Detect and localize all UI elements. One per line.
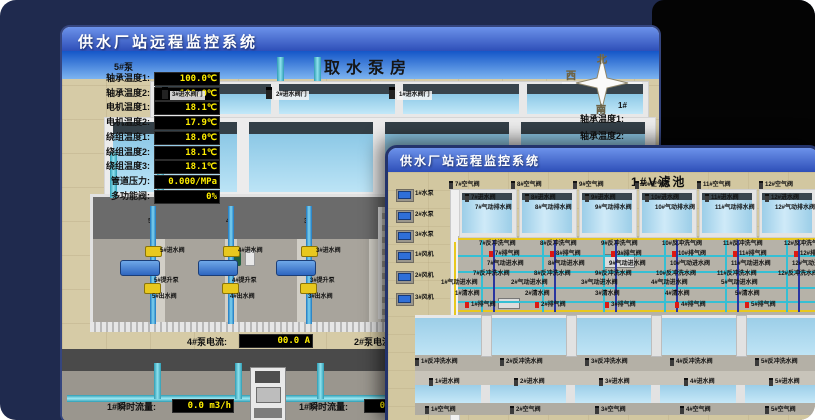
- valve-label: 1#反冲洗水阀: [421, 359, 458, 366]
- valve-icon[interactable]: [511, 181, 515, 189]
- valve-label: 4#反冲洗水阀: [676, 359, 713, 366]
- valve-label: 7#排气阀: [495, 251, 520, 258]
- valve-icon[interactable]: [697, 181, 701, 189]
- pump-house-titlebar[interactable]: 供水厂站远程监控系统: [62, 27, 659, 51]
- valve-label: 5#气动进水阀: [721, 280, 758, 287]
- walkway-pipe: [458, 310, 815, 312]
- valve-label: 10#气动进水阀: [670, 261, 710, 268]
- tank-divider: [481, 315, 492, 357]
- gate-valve-label: 3#进水阀门: [170, 91, 205, 100]
- tank-divider: [651, 385, 660, 403]
- valve-label: 2#空气阀: [516, 407, 541, 414]
- valve-icon[interactable]: [429, 378, 433, 386]
- valve-label: 2#清水阀: [525, 291, 550, 298]
- walkway-pipe: [458, 287, 815, 289]
- valve-label: 9#气动进水阀: [609, 261, 646, 268]
- device-label: 2#水泵: [415, 212, 434, 219]
- pump-panel-label: 电机温度2:: [62, 116, 150, 129]
- compass-north: 北: [597, 53, 607, 66]
- valve-label: 7#空气阀: [455, 182, 480, 189]
- valve-label: 7#反冲洗水阀: [473, 271, 510, 278]
- valve-label: 10#排气阀: [678, 251, 706, 258]
- alarm-marker-icon: [611, 251, 615, 257]
- pump-panel-value: 18.0℃: [154, 131, 220, 145]
- valve-label: 11#排气阀: [739, 251, 767, 258]
- device-label: 1#水泵: [415, 191, 434, 198]
- flow-meter-icon[interactable]: [250, 367, 286, 420]
- valve-label: 4#空气阀: [686, 407, 711, 414]
- tank-divider: [566, 385, 575, 403]
- scene-title-pump-house: 取水泵房: [324, 54, 412, 78]
- alarm-marker-icon: [550, 251, 554, 257]
- valve-icon[interactable]: [635, 181, 639, 189]
- valve-label: 10#进水阀: [651, 195, 679, 202]
- gate-valve-label: 2#进水阀门: [274, 91, 309, 100]
- flow1-value: 0.0 m3/h: [172, 399, 234, 413]
- valve-label: 8#进水阀: [531, 195, 556, 202]
- valve-icon[interactable]: [500, 358, 504, 366]
- pump-panel-value: 0%: [154, 190, 220, 204]
- compass-west: 西: [566, 70, 576, 82]
- valve-icon[interactable]: [525, 194, 529, 202]
- valve-label: 7#反冲洗气阀: [479, 241, 516, 248]
- valve-icon[interactable]: [765, 406, 769, 414]
- valve-label: 12#反冲洗气阀: [784, 241, 815, 248]
- valve-label: 11#进水阀: [711, 195, 739, 202]
- pump-panel-value: 0.000/MPa: [154, 175, 220, 189]
- valve-label: 1#空气阀: [431, 407, 456, 414]
- tank-divider: [651, 315, 662, 357]
- tank-divider: [736, 315, 747, 357]
- pump-panel-label: 管道压力:: [62, 175, 150, 188]
- valve-label: 9#反冲洗水阀: [595, 271, 632, 278]
- pump-panel-value: 18.1℃: [154, 101, 220, 115]
- valve-label: 4#清水阀: [665, 291, 690, 298]
- valve-icon[interactable]: [514, 378, 518, 386]
- alarm-marker-icon: [675, 302, 679, 308]
- gate-valve-icon[interactable]: [389, 87, 395, 99]
- valve-icon[interactable]: [645, 194, 649, 202]
- valve-label: 5#反冲洗水阀: [761, 359, 798, 366]
- pipe: [314, 57, 321, 83]
- valve-label: 7#气动进水阀: [487, 261, 524, 268]
- alarm-marker-icon: [672, 251, 676, 257]
- compass-icon: 北 西 南: [554, 51, 650, 115]
- right-panel-label: 轴承温度2:: [580, 129, 658, 142]
- valve-label: 8#反冲洗水阀: [534, 271, 571, 278]
- pump4-current-label: 4#泵电流:: [187, 335, 227, 348]
- valve-label: 8#排气阀: [556, 251, 581, 258]
- valve-label: 8#反冲洗气阀: [540, 241, 577, 248]
- gate-valve-icon[interactable]: [162, 87, 168, 99]
- valve-label: 2#气动进水阀: [511, 280, 548, 287]
- alarm-marker-icon: [794, 251, 798, 257]
- valve-label: 5#清水阀: [735, 291, 760, 298]
- pipe-riser: [154, 363, 161, 399]
- pump-body-icon[interactable]: [120, 260, 160, 276]
- valve-label: 5#出水阀: [152, 294, 177, 301]
- valve-label: 10#反冲洗气阀: [662, 241, 702, 248]
- device-label: 2#风机: [415, 273, 434, 280]
- pipe-riser: [235, 363, 242, 399]
- valve-label: 2#反冲洗水阀: [506, 359, 543, 366]
- valve-label: 1#清水阀: [455, 291, 480, 298]
- valve-label: 5#空气阀: [771, 407, 796, 414]
- filter-pool-scene: 1#V滤池 1#水泵2#水泵3#水泵1#风机2#风机3#风机7#空气阀8#空气阀…: [388, 172, 815, 420]
- valve-icon[interactable]: [465, 194, 469, 202]
- valve-icon[interactable]: [769, 378, 773, 386]
- pump-panel-value: 18.1℃: [154, 146, 220, 160]
- valve-icon[interactable]: [755, 358, 759, 366]
- gate-valve-icon[interactable]: [266, 87, 272, 99]
- valve-label: 11#气动排水阀: [715, 205, 755, 212]
- pump-label: 3#提升泵: [310, 278, 335, 285]
- pump-icon[interactable]: [398, 232, 411, 240]
- valve-icon[interactable]: [415, 358, 419, 366]
- pump-icon[interactable]: [398, 212, 411, 220]
- valve-label: 11#空气阀: [703, 182, 731, 189]
- pump-panel-label: 绕组温度1:: [62, 131, 150, 144]
- valve-label: 12#进水阀: [771, 195, 799, 202]
- valve-label: 5#进水阀: [160, 248, 185, 255]
- pipe-riser: [317, 363, 324, 399]
- flow1-label: 1#瞬时流量:: [107, 400, 156, 413]
- pump-label: 5#提升泵: [154, 278, 179, 285]
- valve-label: 7#进水阀: [471, 195, 496, 202]
- alarm-marker-icon: [745, 302, 749, 308]
- valve-label: 11#反冲洗气阀: [723, 241, 763, 248]
- tank-divider: [566, 315, 577, 357]
- valve-label: 8#气动排水阀: [535, 205, 572, 212]
- valve-label: 1#排气阀: [471, 302, 496, 309]
- valve-icon[interactable]: [670, 358, 674, 366]
- valve-icon[interactable]: [425, 406, 429, 414]
- pump-panel-value: 100.0℃: [154, 72, 220, 86]
- pump-house-title: 供水厂站远程监控系统: [62, 27, 258, 52]
- pump-panel-label: 绕组温度3:: [62, 160, 150, 173]
- valve-icon[interactable]: [705, 194, 709, 202]
- valve-label: 3#排气阀: [611, 302, 636, 309]
- valve-label: 12#气动排水阀: [775, 205, 815, 212]
- valve-icon[interactable]: [573, 181, 577, 189]
- tank-divider: [736, 385, 745, 403]
- walkway-pipe: [458, 238, 815, 240]
- valve-icon[interactable]: [759, 181, 763, 189]
- fan-icon[interactable]: [398, 252, 411, 260]
- alarm-marker-icon: [465, 302, 469, 308]
- pump-icon[interactable]: [398, 191, 411, 199]
- alarm-marker-icon: [535, 302, 539, 308]
- bottom-tank-water-upper: [415, 315, 815, 358]
- pump-panel-value: 17.9℃: [154, 116, 220, 130]
- valve-label: 10#反冲洗水阀: [656, 271, 696, 278]
- valve-label: 4#进水阀: [238, 248, 263, 255]
- pump-panel-label: 电机温度1:: [62, 101, 150, 114]
- pump-panel-label: 轴承温度1:: [62, 72, 150, 85]
- valve-label: 11#气动进水阀: [731, 261, 771, 268]
- valve-label: 3#清水阀: [595, 291, 620, 298]
- valve-label: 2#进水阀: [520, 379, 545, 386]
- valve-label: 4#出水阀: [230, 294, 255, 301]
- fan-icon[interactable]: [398, 295, 411, 303]
- gate-valve-label: 1#进水阀门: [397, 91, 432, 100]
- pump-panel-value: 18.1℃: [154, 160, 220, 174]
- valve-icon[interactable]: [510, 406, 514, 414]
- valve-label: 2#排气阀: [541, 302, 566, 309]
- valve-label: 3#出水阀: [308, 294, 333, 301]
- valve-label: 9#气动排水阀: [595, 205, 632, 212]
- scada-desktop: 供水厂站远程监控系统 取水泵房 北 西 南: [0, 0, 815, 420]
- bottom-tank-water-lower: [415, 385, 815, 403]
- valve-label: 4#排气阀: [681, 302, 706, 309]
- pipe: [277, 57, 284, 83]
- pump-label: 4#提升泵: [232, 278, 257, 285]
- valve-label: 8#气动进水阀: [548, 261, 585, 268]
- walkway-pipe: [458, 271, 815, 273]
- valve-label: 8#空气阀: [517, 182, 542, 189]
- pump-panel-label: 轴承温度2:: [62, 87, 150, 100]
- alarm-marker-icon: [489, 251, 493, 257]
- device-label: 3#风机: [415, 295, 434, 302]
- valve-label: 4#进水阀: [690, 379, 715, 386]
- valve-label: 3#进水阀: [316, 248, 341, 255]
- right-panel-label: 轴承温度1:: [580, 112, 658, 125]
- valve-icon[interactable]: [680, 406, 684, 414]
- device-label: 3#水泵: [415, 232, 434, 239]
- valve-label: 12#气动进水阀: [792, 261, 815, 268]
- valve-label: 3#气动进水阀: [581, 280, 618, 287]
- valve-label: 9#进水阀: [591, 195, 616, 202]
- tank-divider: [481, 385, 490, 403]
- valve-label: 7#气动排水阀: [475, 205, 512, 212]
- valve-label: 11#反冲洗水阀: [717, 271, 757, 278]
- valve-icon[interactable]: [585, 194, 589, 202]
- valve-label: 3#进水阀: [605, 379, 630, 386]
- valve-label: 1#气动进水阀: [441, 280, 478, 287]
- valve-label: 3#反冲洗水阀: [591, 359, 628, 366]
- valve-icon[interactable]: [585, 358, 589, 366]
- tank-cell: [249, 122, 373, 134]
- fan-icon[interactable]: [398, 273, 411, 281]
- control-box[interactable]: [498, 298, 520, 309]
- valve-icon[interactable]: [449, 181, 453, 189]
- valve-label: 5#排气阀: [751, 302, 776, 309]
- valve-label: 9#排气阀: [617, 251, 642, 258]
- window-filter-pool[interactable]: 供水厂站远程监控系统 1#V滤池 1#水泵2#水泵3#水泵1#风机2#风机3#风…: [385, 145, 815, 420]
- valve-label: 10#空气阀: [641, 182, 669, 189]
- valve-label: 12#空气阀: [765, 182, 793, 189]
- valve-icon[interactable]: [599, 378, 603, 386]
- flow2-label: 1#瞬时流量:: [299, 400, 348, 413]
- right-panel-header: 1#: [618, 101, 627, 110]
- device-label: 1#风机: [415, 252, 434, 259]
- pump-panel-label: 多功能阀:: [62, 190, 150, 203]
- background-panel: [652, 0, 815, 165]
- valve-label: 5#进水阀: [775, 379, 800, 386]
- valve-icon[interactable]: [595, 406, 599, 414]
- tank-cell: [385, 122, 509, 134]
- filter-pool-title: 供水厂站远程监控系统: [388, 148, 540, 169]
- valve-label: 12#排气阀: [800, 251, 815, 258]
- valve-label: 12#反冲洗水阀: [778, 271, 815, 278]
- valve-label: 10#气动排水阀: [655, 205, 695, 212]
- valve-label: 9#反冲洗气阀: [601, 241, 638, 248]
- pump4-current-value: 00.0 A: [239, 334, 313, 348]
- alarm-marker-icon: [605, 302, 609, 308]
- tank-water: [249, 134, 373, 192]
- valve-icon[interactable]: [684, 378, 688, 386]
- valve-label: 3#空气阀: [601, 407, 626, 414]
- valve-label: 1#进水阀: [435, 379, 460, 386]
- pump-body-icon[interactable]: [198, 260, 238, 276]
- valve-label: 9#空气阀: [579, 182, 604, 189]
- filter-pool-titlebar[interactable]: 供水厂站远程监控系统: [388, 148, 815, 172]
- valve-icon[interactable]: [765, 194, 769, 202]
- pump-panel-label: 绕组温度2:: [62, 146, 150, 159]
- alarm-marker-icon: [733, 251, 737, 257]
- valve-label: 4#气动进水阀: [651, 280, 688, 287]
- pump-body-icon[interactable]: [276, 260, 316, 276]
